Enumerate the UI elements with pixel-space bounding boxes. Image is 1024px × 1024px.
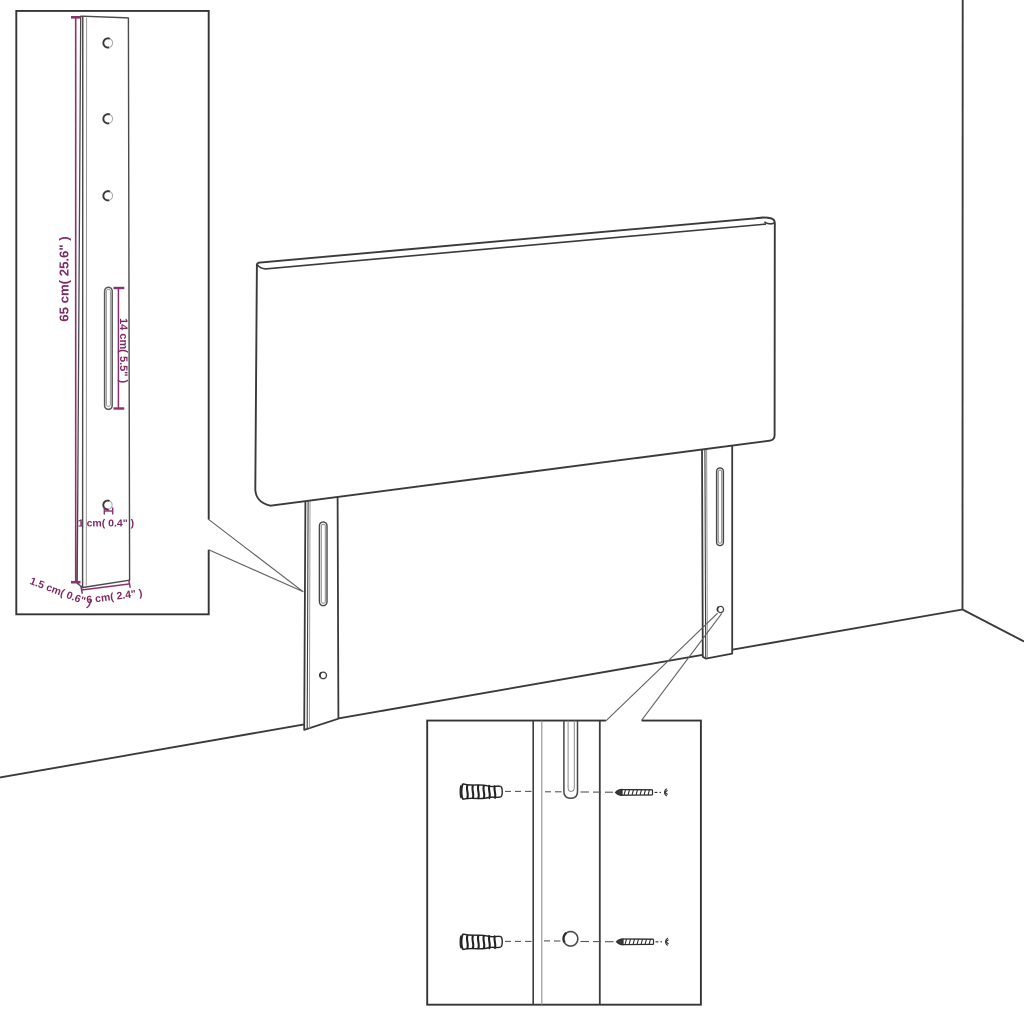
svg-text:65 cm( 25.6" ): 65 cm( 25.6" ) <box>57 236 72 321</box>
svg-text:1 cm( 0.4" ): 1 cm( 0.4" ) <box>78 517 134 529</box>
svg-text:14 cm( 5.5" ): 14 cm( 5.5" ) <box>117 318 129 383</box>
